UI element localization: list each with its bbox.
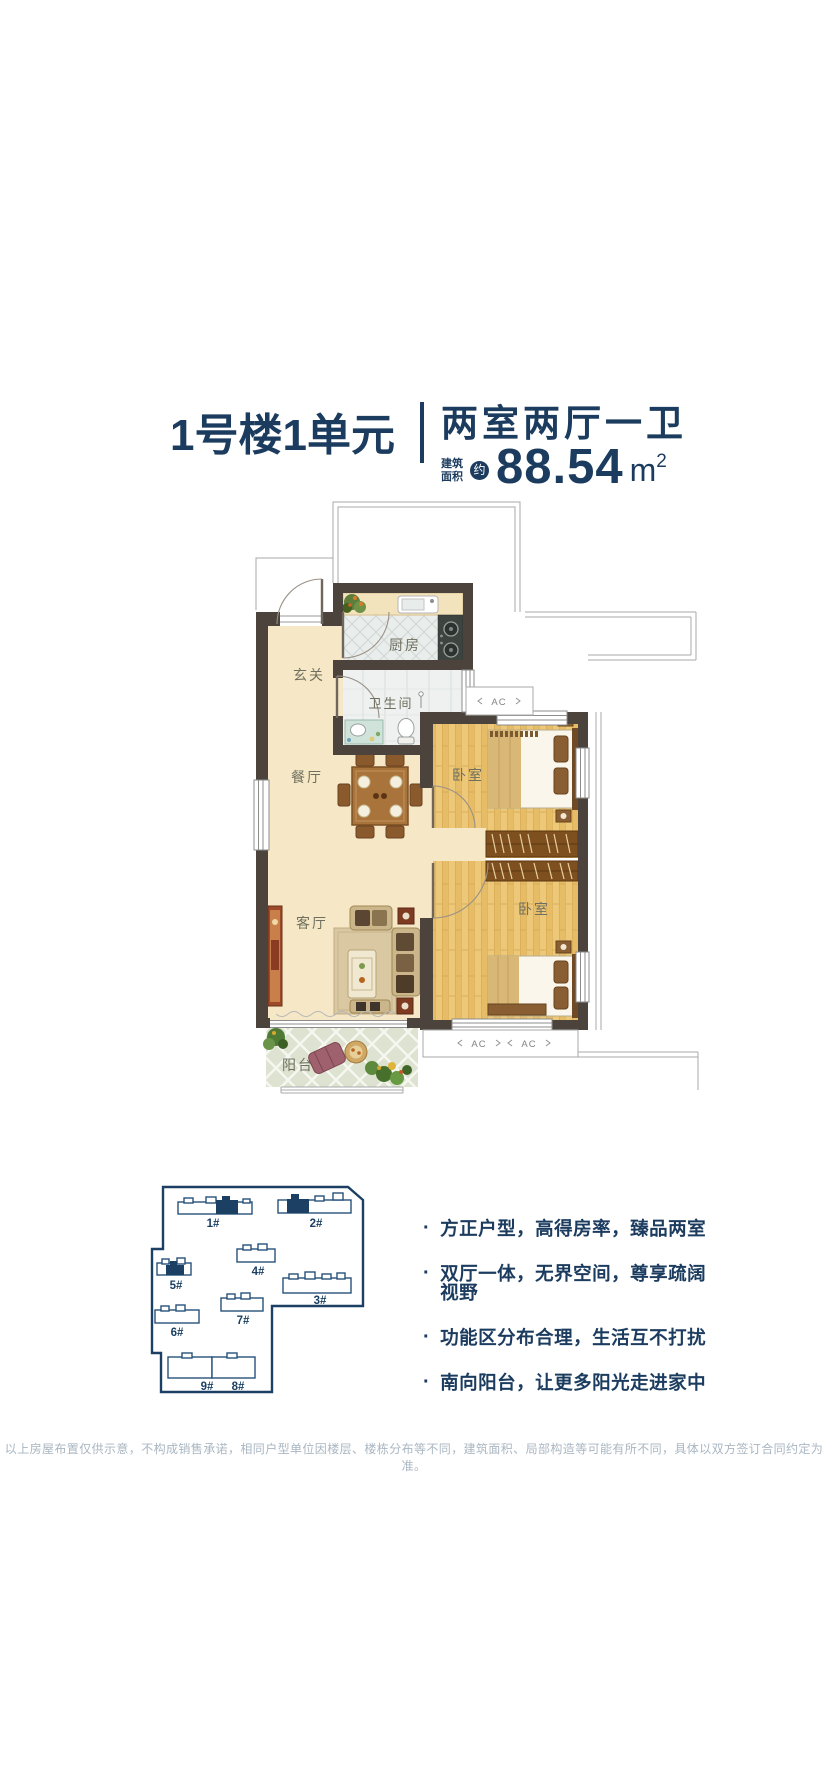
building-label-7: 7#: [237, 1315, 250, 1327]
bedroom2-bottom-window: [452, 1019, 552, 1031]
highlight-unit: [287, 1199, 309, 1213]
stove: [438, 615, 463, 663]
feature-text: 南向阳台，让更多阳光走进家中: [440, 1373, 706, 1392]
disclaimer-text: 以上房屋布置仅供示意，不构成销售承诺，相同户型单位因楼层、楼栋分布等不同，建筑面…: [0, 1440, 828, 1474]
end-table-bottom: [397, 998, 413, 1014]
building-9: [168, 1353, 212, 1378]
layout-type-title: 两室两厅一卫: [441, 405, 687, 442]
room-label-balcony: 阳台: [282, 1057, 314, 1073]
coffee-table: [348, 950, 376, 998]
building-1: [178, 1196, 252, 1214]
page-title: 1号楼1单元: [170, 414, 395, 458]
room-label-kitchen: 厨房: [389, 637, 421, 653]
wardrobe-bedroom2: [486, 861, 578, 881]
bullet-dot: ·: [423, 1264, 430, 1282]
feature-text: 双厅一体，无界空间，尊享疏阔视野: [440, 1264, 723, 1302]
wardrobe-bedroom1: [486, 831, 578, 857]
building-8: [212, 1353, 255, 1378]
area-label: 建筑 面积: [441, 458, 463, 483]
armchair: [350, 906, 392, 930]
header-divider: [420, 402, 424, 463]
bullet-dot: ·: [423, 1373, 430, 1391]
room-label-bedroom1: 卧室: [452, 767, 484, 783]
building-6: [155, 1305, 199, 1323]
ac-platform-top: AC: [466, 687, 533, 715]
highlight-unit: [166, 1265, 184, 1275]
tv-console: [268, 906, 282, 1006]
building-label-6: 6#: [171, 1327, 184, 1339]
room-label-hall: 玄关: [293, 667, 325, 683]
building-label-4: 4#: [252, 1266, 265, 1278]
entry-threshold: [280, 612, 322, 626]
room-label-bathroom: 卫生间: [368, 696, 413, 711]
site-plan: 1# 2# 4# 5# 3# 7# 6#: [146, 1182, 368, 1398]
ac-platform-bottom: AC AC: [423, 1030, 578, 1057]
room-label-living: 客厅: [296, 915, 328, 931]
bedroom1-right-window: [576, 748, 589, 798]
ac-label: AC: [471, 1039, 486, 1050]
ac-label: AC: [491, 697, 506, 708]
room-label-bedroom2: 卧室: [518, 901, 550, 917]
building-label-9: 9#: [201, 1381, 214, 1393]
feature-item: · 南向阳台，让更多阳光走进家中: [423, 1373, 723, 1392]
building-3: [283, 1272, 351, 1293]
room-label-dining: 餐厅: [291, 769, 323, 785]
balcony-slider: [270, 1021, 407, 1028]
circa-badge: 约: [470, 461, 489, 480]
building-label-8: 8#: [232, 1381, 245, 1393]
living-window-left: [254, 780, 269, 850]
building-2: [278, 1193, 351, 1213]
building-label-1: 1#: [207, 1218, 220, 1230]
bullet-dot: ·: [423, 1328, 430, 1346]
built-area: 建筑 面积 约 88.54 m2: [441, 447, 667, 487]
balcony-rail: [281, 1087, 403, 1093]
feature-item: · 双厅一体，无界空间，尊享疏阔视野: [423, 1264, 723, 1302]
building-7: [221, 1293, 263, 1311]
vestibule-floor: [433, 828, 486, 861]
building-label-3: 3#: [314, 1295, 327, 1307]
bedroom2-right-window: [576, 952, 589, 1002]
end-table-top: [398, 908, 414, 924]
bullet-dot: ·: [423, 1219, 430, 1237]
floor-plan: AC AC AC 玄关 厨房 卫生间 餐厅 卧室 客厅 卧室 阳台: [215, 490, 705, 1100]
area-unit: m2: [630, 456, 667, 485]
storage-bench: [350, 1000, 390, 1013]
building-label-2: 2#: [310, 1218, 323, 1230]
feature-text: 方正户型，高得房率，臻品两室: [440, 1219, 706, 1238]
highlight-unit: [216, 1200, 238, 1214]
bath-vanity: [345, 720, 383, 744]
ac-label: AC: [521, 1039, 536, 1050]
toilet: [398, 719, 414, 745]
feature-list: · 方正户型，高得房率，臻品两室 · 双厅一体，无界空间，尊享疏阔视野 · 功能…: [423, 1219, 723, 1418]
sofa: [392, 928, 420, 996]
balcony-table: [345, 1041, 367, 1063]
feature-item: · 方正户型，高得房率，臻品两室: [423, 1219, 723, 1238]
feature-text: 功能区分布合理，生活互不打扰: [440, 1328, 706, 1347]
corridor-opening-floor: [423, 788, 433, 918]
feature-item: · 功能区分布合理，生活互不打扰: [423, 1328, 723, 1347]
building-4: [237, 1244, 275, 1262]
area-value: 88.54: [496, 447, 624, 487]
building-label-5: 5#: [170, 1280, 183, 1292]
bed-bedroom1: [488, 714, 581, 822]
building-5: [157, 1258, 191, 1275]
